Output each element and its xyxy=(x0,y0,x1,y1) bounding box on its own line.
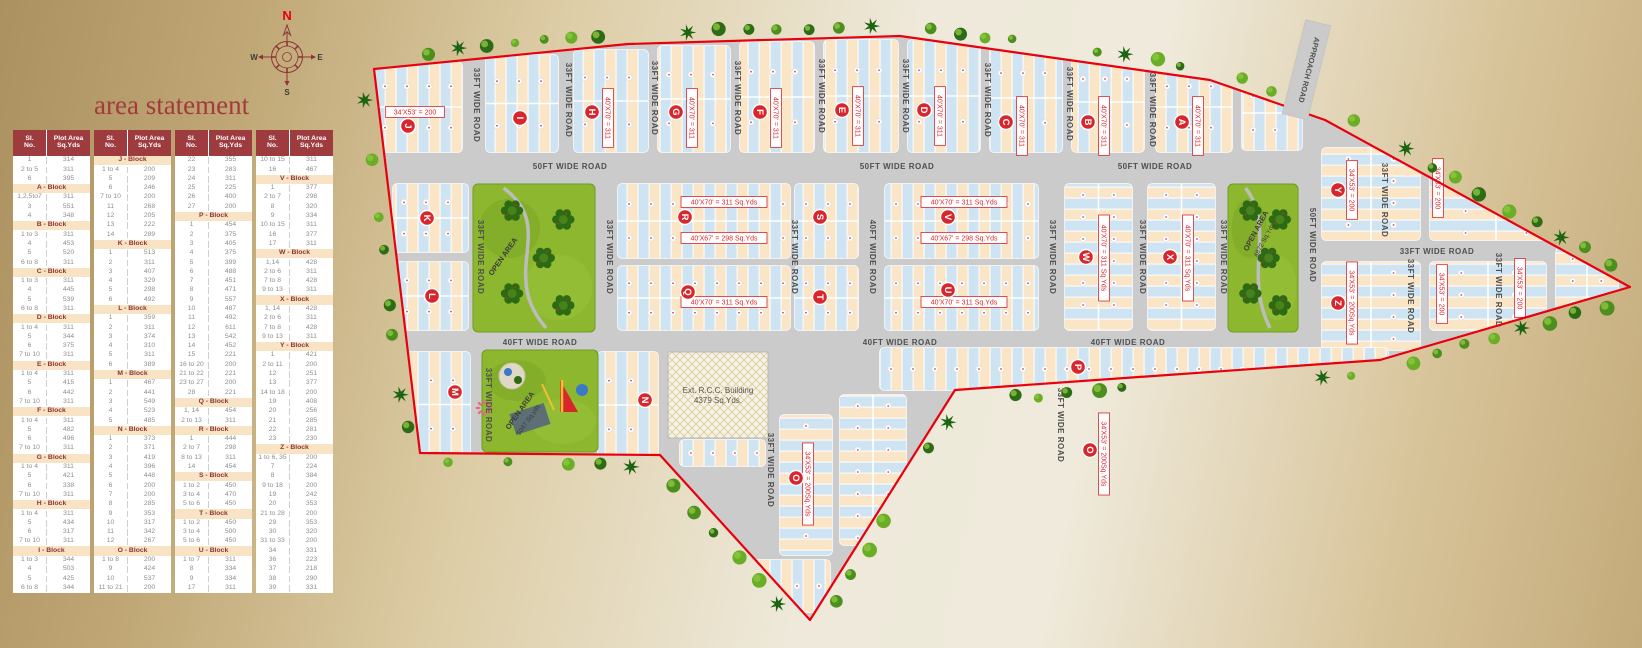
cell-plot-area: 283 xyxy=(209,167,252,174)
cell-sl-no: 5 xyxy=(13,250,47,257)
cell-sl-no: 5 xyxy=(13,473,47,480)
table-row: 9 to 13311 xyxy=(256,286,333,295)
block-header-row: S - Block xyxy=(175,472,252,481)
cell-plot-area: 298 xyxy=(290,194,333,201)
table-row: 8320 xyxy=(256,202,333,211)
block-letter: D xyxy=(918,107,929,114)
cell-plot-area: 338 xyxy=(47,483,90,490)
block-header-row: C - Block xyxy=(13,268,90,277)
area-label: 40'X70' = 311 xyxy=(603,89,614,148)
table-row: 10537 xyxy=(94,574,171,583)
table-row: 21 to 22221 xyxy=(175,370,252,379)
table-row: 6 to 8344 xyxy=(13,584,90,593)
plot-number-dot xyxy=(1111,425,1117,431)
svg-text:40'X70' = 311 Sq.Yds: 40'X70' = 311 Sq.Yds xyxy=(691,200,758,207)
cell-plot-area: 355 xyxy=(209,157,252,164)
svg-text:34'X53' = 200: 34'X53' = 200 xyxy=(1437,273,1444,316)
block-header-row: B - Block xyxy=(13,221,90,230)
table-row: 7 to 10311 xyxy=(13,491,90,500)
cell-plot-area: 311 xyxy=(47,399,90,406)
svg-text:34'X53' = 200Sq.Yds: 34'X53' = 200Sq.Yds xyxy=(1099,421,1106,487)
table-row: 8384 xyxy=(256,472,333,481)
cell-sl-no: 10 to 15 xyxy=(256,157,290,164)
cell-plot-area: 375 xyxy=(209,232,252,239)
cell-plot-area: 342 xyxy=(128,529,171,536)
block-letter: J xyxy=(402,123,413,128)
palm-tree-icon xyxy=(357,92,373,109)
compass-south-label: S xyxy=(284,88,290,97)
cell-sl-no: 21 to 22 xyxy=(175,371,209,378)
cell-plot-area: 557 xyxy=(209,297,252,304)
block-badge-M: M xyxy=(448,385,463,400)
cell-sl-no: 9 xyxy=(175,576,209,583)
road-label: 33FT WIDE ROAD xyxy=(790,220,799,295)
cell-plot-area: 428 xyxy=(290,306,333,313)
area-label: 40'X70' = 311 Sq.Yds xyxy=(1099,215,1110,301)
table-row: 6375 xyxy=(13,342,90,351)
cell-plot-area: 311 xyxy=(209,455,252,462)
cell-sl-no: 12 xyxy=(256,371,290,378)
cell-sl-no: 1 xyxy=(175,436,209,443)
cell-sl-no: 31 to 33 xyxy=(256,538,290,545)
plot-number-dot xyxy=(1111,491,1117,497)
svg-text:40'X70' = 311 Sq.Yds: 40'X70' = 311 Sq.Yds xyxy=(1183,225,1190,292)
table-row: 12267 xyxy=(94,537,171,546)
cell-sl-no: 3 xyxy=(175,241,209,248)
area-label: 34'X53' = 200Sq.Yds xyxy=(803,443,814,525)
table-row: 27200 xyxy=(175,202,252,211)
cell-plot-area: 200 xyxy=(290,455,333,462)
table-row: 12251 xyxy=(256,370,333,379)
cell-sl-no: 3 xyxy=(94,455,128,462)
cell-sl-no: 27 xyxy=(175,204,209,211)
cell-sl-no: 1 to 3 xyxy=(13,278,47,285)
cell-sl-no: 1 to 8 xyxy=(94,557,128,564)
cell-plot-area: 492 xyxy=(128,297,171,304)
table-row: 1 to 7311 xyxy=(175,556,252,565)
table-row: 10317 xyxy=(94,519,171,528)
road-label: 50FT WIDE ROAD xyxy=(533,162,608,171)
table-row: 1377 xyxy=(256,184,333,193)
cell-sl-no: 7 to 10 xyxy=(13,352,47,359)
cell-plot-area: 200 xyxy=(290,362,333,369)
block-letter: F xyxy=(754,109,765,115)
road-label: 33FT WIDE ROAD xyxy=(650,61,659,136)
palm-tree-icon xyxy=(1553,229,1569,246)
cell-plot-area: 428 xyxy=(290,260,333,267)
cell-plot-area: 348 xyxy=(47,213,90,220)
table-row: 13377 xyxy=(256,379,333,388)
table-row: 5344 xyxy=(13,333,90,342)
cell-sl-no: 1 xyxy=(94,250,128,257)
block-header-row: K - Block xyxy=(94,240,171,249)
area-label: 40'X70' = 311 Sq.Yds xyxy=(681,297,767,308)
cell-sl-no: 17 xyxy=(175,585,209,592)
table-row: 8334 xyxy=(175,565,252,574)
table-row: 29353 xyxy=(256,519,333,528)
table-row: 7 to 10311 xyxy=(13,537,90,546)
road-label: 33FT WIDE ROAD xyxy=(472,68,481,143)
cell-sl-no: 6 xyxy=(13,436,47,443)
cell-plot-area: 450 xyxy=(209,501,252,508)
table-row: 38290 xyxy=(256,574,333,583)
cell-plot-area: 311 xyxy=(47,167,90,174)
table-row: 5434 xyxy=(13,519,90,528)
palm-tree-icon xyxy=(680,24,696,41)
table-row: 7224 xyxy=(256,463,333,472)
cell-sl-no: 7 to 8 xyxy=(256,325,290,332)
block-header-row: Q - Block xyxy=(175,398,252,407)
road-label: 33FT WIDE ROAD xyxy=(1065,67,1074,142)
open-area-park: OPEN AREA xyxy=(473,184,595,332)
table-row: 1 to 4311 xyxy=(13,323,90,332)
cell-sl-no: 38 xyxy=(256,576,290,583)
svg-text:40'X70' = 311: 40'X70' = 311 xyxy=(853,95,860,137)
block-letter: O xyxy=(790,474,801,481)
rcc-building: Ext. R.C.C. Building4379 Sq.Yds. xyxy=(668,352,768,438)
table-row: 7 to 10311 xyxy=(13,444,90,453)
cell-sl-no: 23 xyxy=(175,167,209,174)
block-letter: A xyxy=(1176,119,1187,126)
cell-plot-area: 311 xyxy=(47,325,90,332)
cell-plot-area: 344 xyxy=(47,585,90,592)
compass-rose: NEWS xyxy=(250,8,323,97)
table-row: 23230 xyxy=(256,435,333,444)
table-row: 16377 xyxy=(256,230,333,239)
table-row: 30320 xyxy=(256,528,333,537)
cell-sl-no: 1 to 4 xyxy=(13,371,47,378)
table-row: 4375 xyxy=(175,249,252,258)
block-badge-L: L xyxy=(425,289,440,304)
cell-sl-no: 39 xyxy=(256,585,290,592)
cell-sl-no: 7 to 10 xyxy=(94,194,128,201)
cell-sl-no: 2 xyxy=(175,232,209,239)
cell-plot-area: 251 xyxy=(290,371,333,378)
table-row: 7 to 10200 xyxy=(94,193,171,202)
cell-plot-area: 542 xyxy=(209,334,252,341)
cell-plot-area: 317 xyxy=(47,529,90,536)
cell-sl-no: 3 xyxy=(94,269,128,276)
cell-plot-area: 425 xyxy=(47,576,90,583)
block-header-row: P - Block xyxy=(175,212,252,221)
table-row: 1421 xyxy=(256,351,333,360)
block-header-row: Z - Block xyxy=(256,444,333,453)
cell-plot-area: 549 xyxy=(128,399,171,406)
cell-plot-area: 311 xyxy=(47,194,90,201)
cell-plot-area: 311 xyxy=(47,418,90,425)
palm-tree-icon xyxy=(1514,320,1530,337)
cell-sl-no: 2 to 11 xyxy=(256,362,290,369)
table-row: 1314 xyxy=(13,156,90,165)
cell-sl-no: 7 to 10 xyxy=(13,445,47,452)
cell-plot-area: 221 xyxy=(209,390,252,397)
table-row: 31 to 33200 xyxy=(256,537,333,546)
svg-text:40'X67' = 298 Sq.Yds: 40'X67' = 298 Sq.Yds xyxy=(930,236,998,243)
cell-sl-no: 26 xyxy=(175,194,209,201)
compass-north-label: N xyxy=(282,8,291,23)
table-row: 8 to 13311 xyxy=(175,454,252,463)
table-row: 3374 xyxy=(94,333,171,342)
cell-plot-area: 311 xyxy=(47,371,90,378)
cell-plot-area: 314 xyxy=(47,157,90,164)
table-row: 17311 xyxy=(175,584,252,593)
open-area-park: OPEN AREA4872 Sq.Yds xyxy=(1228,184,1298,332)
cell-plot-area: 221 xyxy=(209,371,252,378)
table-row: 15221 xyxy=(175,351,252,360)
cell-plot-area: 290 xyxy=(290,576,333,583)
area-table: Sl. No.Plot Area Sq.Yds13142 to 53116395… xyxy=(13,130,90,593)
cell-sl-no: 2 xyxy=(94,445,128,452)
cell-sl-no: 10 xyxy=(94,520,128,527)
block-letter: W xyxy=(1080,253,1091,262)
cell-plot-area: 523 xyxy=(128,408,171,415)
cell-plot-area: 371 xyxy=(128,445,171,452)
block-letter: S xyxy=(814,214,825,220)
plot-number-dot xyxy=(1523,208,1529,214)
cell-sl-no: 4 xyxy=(13,213,47,220)
cell-plot-area: 200 xyxy=(290,483,333,490)
cell-sl-no: 1 to 2 xyxy=(175,520,209,527)
cell-plot-area: 246 xyxy=(128,185,171,192)
svg-text:34'X53' = 200Sq.Yds: 34'X53' = 200Sq.Yds xyxy=(1347,270,1354,336)
table-row: 11 to 21200 xyxy=(94,584,171,593)
cell-plot-area: 256 xyxy=(290,408,333,415)
cell-sl-no: 2 to 5 xyxy=(13,167,47,174)
area-label: 40'X70' = 311 xyxy=(853,87,864,146)
cell-plot-area: 485 xyxy=(128,418,171,425)
cell-plot-area: 311 xyxy=(47,306,90,313)
cell-plot-area: 200 xyxy=(209,380,252,387)
table-row: 20256 xyxy=(256,407,333,416)
compass-east-label: E xyxy=(317,53,323,62)
block-header-row: A - Block xyxy=(13,184,90,193)
block-letter: E xyxy=(836,107,847,113)
table-row: 1 to 4311 xyxy=(13,463,90,472)
cell-sl-no: 6 xyxy=(13,529,47,536)
table-row: 4523 xyxy=(94,407,171,416)
cell-sl-no: 5 xyxy=(13,520,47,527)
block-letter: G xyxy=(670,108,681,115)
cell-sl-no: 12 xyxy=(175,325,209,332)
block-badge-G: G xyxy=(669,105,684,120)
table-row: 10 to 15311 xyxy=(256,156,333,165)
cell-sl-no: 2 to 13 xyxy=(175,418,209,425)
cell-sl-no: 4 xyxy=(13,287,47,294)
table-row: 6317 xyxy=(13,528,90,537)
area-label: 34'X53' = 200 xyxy=(1347,161,1358,220)
table-row: 6389 xyxy=(94,361,171,370)
block-badge-K: K xyxy=(420,211,435,226)
block-letter: N xyxy=(639,397,650,404)
table-row: 2375 xyxy=(175,230,252,239)
block-badge-E: E xyxy=(835,103,850,118)
block-letter: Q xyxy=(682,288,693,295)
table-row: 7 to 8428 xyxy=(256,323,333,332)
block-letter: Y xyxy=(1332,187,1343,194)
block-letter: O xyxy=(1084,446,1095,453)
block-badge-H: H xyxy=(585,105,600,120)
table-row: 12205 xyxy=(94,212,171,221)
table-row: 4348 xyxy=(13,212,90,221)
table-row: 9334 xyxy=(175,574,252,583)
table-row: 3549 xyxy=(94,398,171,407)
cell-plot-area: 311 xyxy=(47,464,90,471)
road-label: 33FT WIDE ROAD xyxy=(484,368,493,443)
table-row: 21 to 28200 xyxy=(256,509,333,518)
block-badge-P: P xyxy=(1071,360,1086,375)
table-row: 36223 xyxy=(256,556,333,565)
table-row: 4329 xyxy=(94,277,171,286)
table-row: 14452 xyxy=(175,342,252,351)
road-label: 40FT WIDE ROAD xyxy=(503,338,578,347)
cell-plot-area: 405 xyxy=(209,241,252,248)
block-badge-R: R xyxy=(678,210,693,225)
cell-plot-area: 539 xyxy=(47,297,90,304)
road-label: 33FT WIDE ROAD xyxy=(733,61,742,136)
cell-sl-no: 20 xyxy=(256,408,290,415)
cell-plot-area: 492 xyxy=(209,315,252,322)
cell-plot-area: 200 xyxy=(128,557,171,564)
cell-sl-no: 2 to 6 xyxy=(256,315,290,322)
cell-plot-area: 311 xyxy=(209,557,252,564)
area-label: 40'X70' = 311 xyxy=(1193,97,1204,156)
table-row: 1 to 4311 xyxy=(13,509,90,518)
cell-sl-no: 6 to 8 xyxy=(13,585,47,592)
cell-plot-area: 334 xyxy=(290,213,333,220)
cell-sl-no: 20 xyxy=(256,501,290,508)
cell-plot-area: 310 xyxy=(128,343,171,350)
cell-plot-area: 311 xyxy=(47,511,90,518)
block-header-row: V - Block xyxy=(256,175,333,184)
table-row: 5209 xyxy=(94,175,171,184)
cell-plot-area: 470 xyxy=(209,492,252,499)
palm-tree-icon xyxy=(451,40,467,57)
block-badge-N: N xyxy=(638,393,653,408)
block-header-row: E - Block xyxy=(13,361,90,370)
cell-plot-area: 373 xyxy=(128,436,171,443)
cell-sl-no: 9 xyxy=(175,297,209,304)
block-letter: V xyxy=(942,214,953,221)
plot-number-dot xyxy=(1085,425,1091,431)
table-row: 1 to 4311 xyxy=(13,416,90,425)
cell-sl-no: 4 xyxy=(94,343,128,350)
cell-plot-area: 389 xyxy=(128,362,171,369)
table-row: 2 to 6311 xyxy=(256,314,333,323)
area-label: 40'X70' = 311 xyxy=(935,87,946,146)
cell-plot-area: 311 xyxy=(128,260,171,267)
table-row: 1 to 2450 xyxy=(175,519,252,528)
table-row: 5485 xyxy=(94,416,171,425)
cell-plot-area: 374 xyxy=(128,334,171,341)
table-row: 5421 xyxy=(13,472,90,481)
cell-plot-area: 454 xyxy=(209,464,252,471)
cell-sl-no: 12 xyxy=(94,213,128,220)
cell-sl-no: 17 xyxy=(256,241,290,248)
cell-plot-area: 450 xyxy=(209,520,252,527)
table-row: 9557 xyxy=(175,295,252,304)
table-row: 2311 xyxy=(94,323,171,332)
cell-plot-area: 200 xyxy=(209,362,252,369)
cell-plot-area: 454 xyxy=(209,408,252,415)
cell-sl-no: 1 to 3 xyxy=(13,232,47,239)
block-header-row: W - Block xyxy=(256,249,333,258)
cell-sl-no: 8 xyxy=(256,473,290,480)
cell-plot-area: 359 xyxy=(128,315,171,322)
building-label: Ext. R.C.C. Building xyxy=(683,386,754,395)
table-row: 3419 xyxy=(94,454,171,463)
road-label: 33FT WIDE ROAD xyxy=(1406,259,1415,334)
palm-tree-icon xyxy=(623,459,639,476)
table-row: 26400 xyxy=(175,193,252,202)
cell-sl-no: 1,2,5to7 xyxy=(13,194,47,201)
svg-text:40'X70' = 311: 40'X70' = 311 xyxy=(771,97,778,139)
cell-sl-no: 1 to 4 xyxy=(94,167,128,174)
table-header: Sl. No.Plot Area Sq.Yds xyxy=(13,130,90,156)
cell-plot-area: 400 xyxy=(209,194,252,201)
plot-number-dot xyxy=(360,83,366,89)
cell-plot-area: 444 xyxy=(209,436,252,443)
area-table: Sl. No.Plot Area Sq.YdsJ - Block1 to 420… xyxy=(94,130,171,593)
cell-sl-no: 4 xyxy=(175,250,209,257)
cell-sl-no: 5 xyxy=(94,418,128,425)
cell-plot-area: 311 xyxy=(128,325,171,332)
table-row: 1,2,5to7311 xyxy=(13,193,90,202)
cell-plot-area: 331 xyxy=(290,585,333,592)
cell-sl-no: 36 xyxy=(256,557,290,564)
cell-plot-area: 419 xyxy=(128,455,171,462)
cell-sl-no: 14 xyxy=(94,232,128,239)
cell-sl-no: 7 xyxy=(175,278,209,285)
cell-plot-area: 311 xyxy=(209,418,252,425)
cell-plot-area: 311 xyxy=(290,334,333,341)
block-badge-J: J xyxy=(401,119,416,134)
area-table: Sl. No.Plot Area Sq.Yds22355232832431125… xyxy=(175,130,252,593)
block-header-row: M - Block xyxy=(94,370,171,379)
table-row: 19408 xyxy=(256,398,333,407)
cell-sl-no: 9 xyxy=(94,511,128,518)
poster-canvas: OPEN AREAOPEN AREA5047 Sq.ydsOPEN AREA48… xyxy=(0,0,1642,648)
road-label: 33FT WIDE ROAD xyxy=(1219,220,1228,295)
table-row: 2 to 11200 xyxy=(256,361,333,370)
svg-text:40'X70' = 311: 40'X70' = 311 xyxy=(603,97,610,139)
cell-sl-no: 12 xyxy=(94,538,128,545)
table-header: Sl. No.Plot Area Sq.Yds xyxy=(256,130,333,156)
cell-sl-no: 1 to 4 xyxy=(13,418,47,425)
plot-number-dot xyxy=(1111,447,1117,453)
block-letter: K xyxy=(421,215,432,222)
cell-sl-no: 1 xyxy=(256,185,290,192)
cell-sl-no: 22 xyxy=(256,427,290,434)
cell-plot-area: 230 xyxy=(290,436,333,443)
compass-west-label: W xyxy=(250,53,258,62)
cell-sl-no: 5 xyxy=(94,176,128,183)
table-row: 5520 xyxy=(13,249,90,258)
cell-sl-no: 14 xyxy=(175,464,209,471)
table-row: 9424 xyxy=(94,565,171,574)
area-label: 40'X70' = 311 Sq.Yds xyxy=(1183,215,1194,301)
cell-plot-area: 377 xyxy=(290,232,333,239)
cell-sl-no: 2 to 7 xyxy=(256,194,290,201)
table-row: 2 to 6311 xyxy=(256,268,333,277)
table-row: 14289 xyxy=(94,230,171,239)
table-row: 3407 xyxy=(94,268,171,277)
cell-sl-no: 4 xyxy=(94,408,128,415)
block-badge-D: D xyxy=(917,103,932,118)
cell-plot-area: 311 xyxy=(290,269,333,276)
palm-tree-icon xyxy=(770,596,786,613)
cell-plot-area: 320 xyxy=(290,204,333,211)
header-sl-no: Sl. No. xyxy=(256,130,290,156)
